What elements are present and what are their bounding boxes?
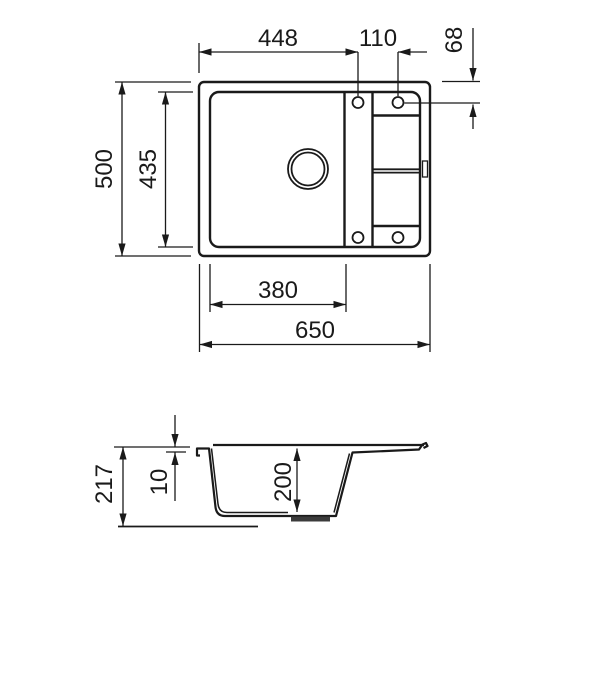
dim-217-label: 217 [91, 464, 118, 504]
dim-110-label: 110 [359, 25, 397, 52]
tap-hole-bottom-left [353, 232, 364, 243]
drawing-canvas: 448 110 68 500 435 380 650 [0, 0, 600, 689]
tap-hole-bottom-right [393, 232, 404, 243]
dim-68-label: 68 [441, 27, 468, 54]
sink-technical-drawing: 448 110 68 500 435 380 650 [0, 0, 600, 689]
section-inner-right-wall [334, 454, 350, 513]
overflow-slot [423, 161, 428, 177]
section-profile [197, 443, 428, 516]
drain-inner-circle [292, 153, 325, 186]
dim-435-label: 435 [135, 149, 162, 189]
dim-200-label: 200 [270, 462, 297, 502]
top-view-dimensions: 448 110 68 500 435 380 650 [91, 25, 480, 352]
tap-hole-top-left [353, 97, 364, 108]
section-view: 217 10 200 [91, 415, 428, 527]
dim-500-label: 500 [91, 149, 118, 189]
dim-448-label: 448 [258, 25, 298, 52]
dim-10-label: 10 [146, 469, 173, 496]
top-view [199, 82, 430, 256]
tap-hole-top-right [393, 97, 404, 108]
dim-650-label: 650 [295, 317, 335, 344]
dim-380-label: 380 [258, 277, 298, 304]
drain-outer-circle [288, 149, 328, 189]
